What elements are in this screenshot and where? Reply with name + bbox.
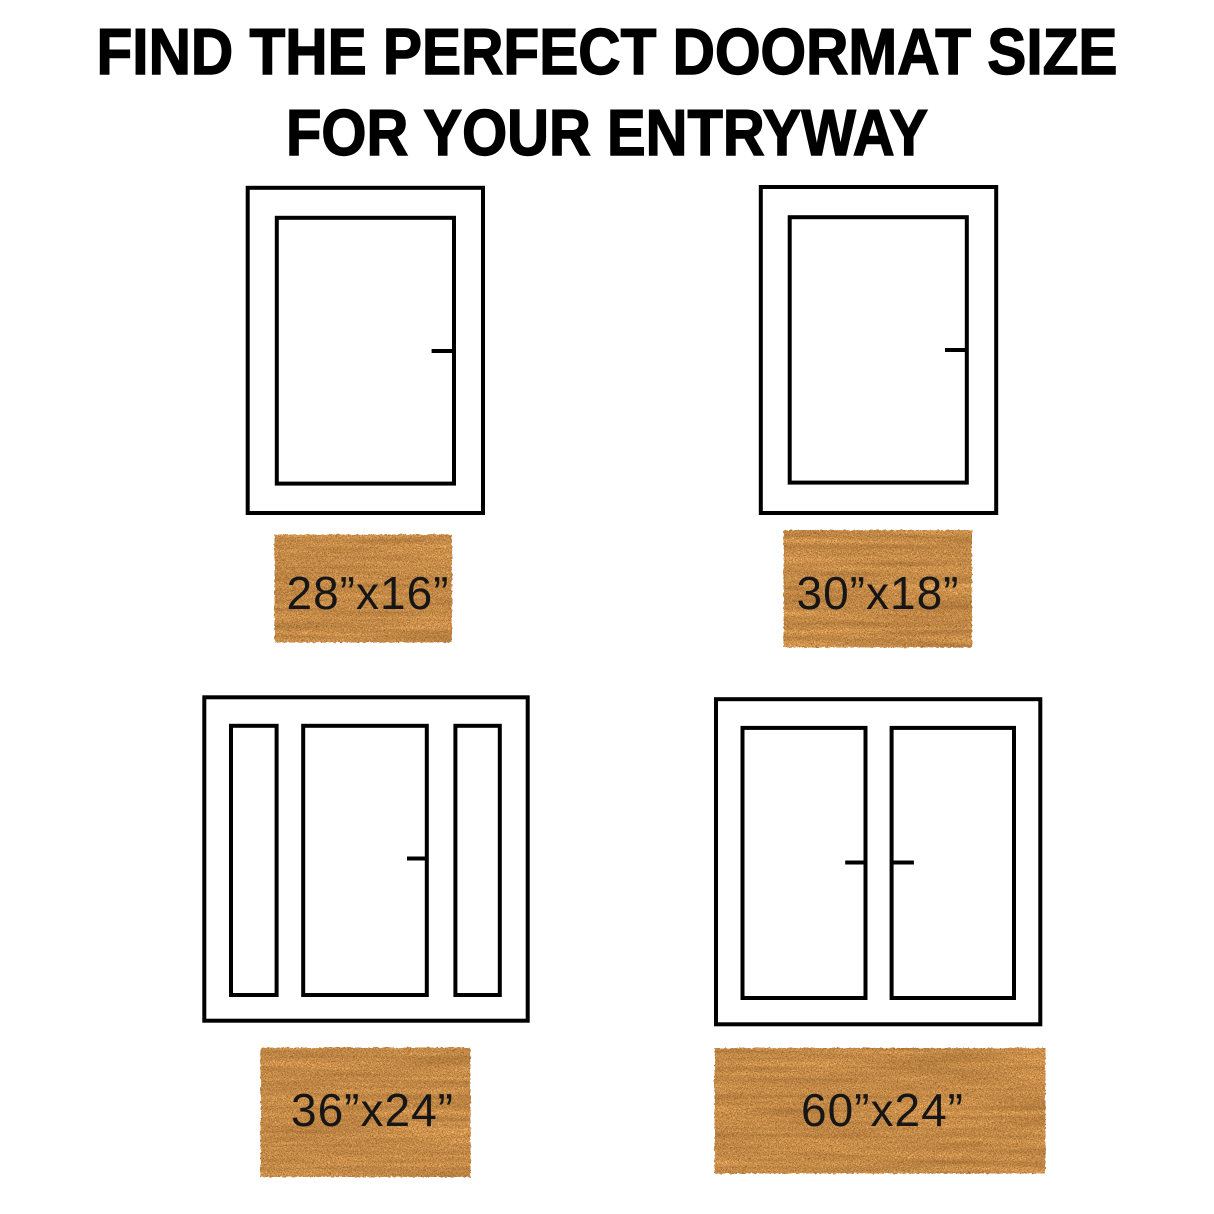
svg-text:60”x24”: 60”x24” xyxy=(801,1084,964,1136)
svg-text:28”x16”: 28”x16” xyxy=(287,567,450,619)
svg-text:36”x24”: 36”x24” xyxy=(291,1084,454,1136)
svg-text:FOR YOUR ENTRYWAY: FOR YOUR ENTRYWAY xyxy=(286,96,928,169)
svg-text:30”x18”: 30”x18” xyxy=(797,567,960,619)
svg-text:FIND THE PERFECT DOORMAT SIZE: FIND THE PERFECT DOORMAT SIZE xyxy=(97,15,1118,88)
